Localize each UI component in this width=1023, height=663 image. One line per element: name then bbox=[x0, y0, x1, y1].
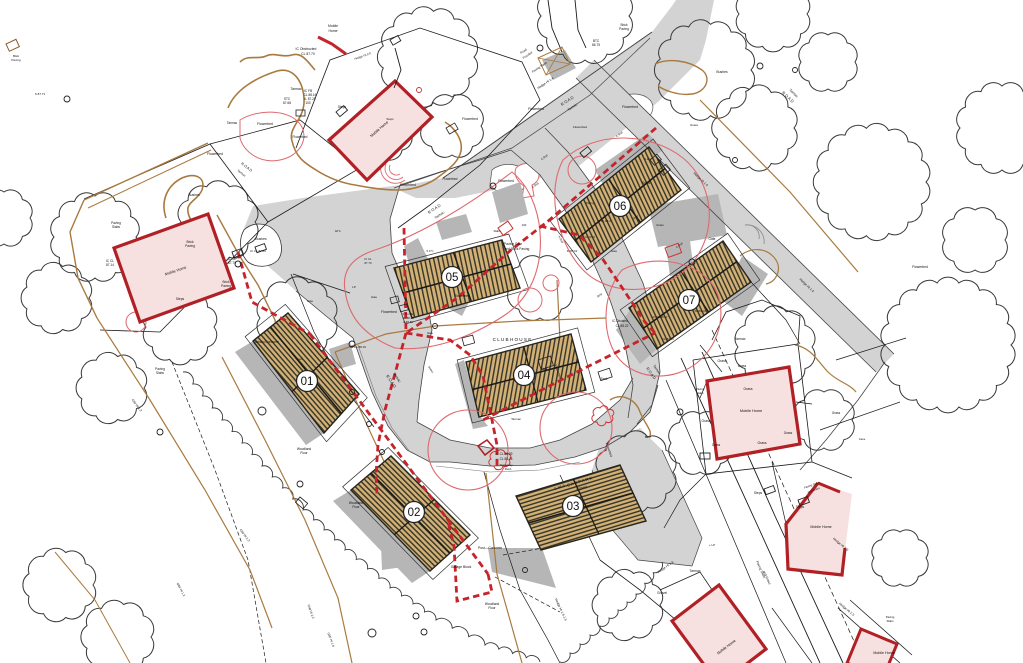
svg-text:Steps: Steps bbox=[176, 297, 185, 301]
svg-text:100: 100 bbox=[522, 223, 527, 227]
svg-text:IC Obstructed: IC Obstructed bbox=[296, 47, 317, 51]
svg-text:Gate: Gate bbox=[427, 331, 434, 335]
svg-text:Mobile Home: Mobile Home bbox=[810, 525, 831, 529]
svg-text:100: 100 bbox=[305, 101, 311, 105]
svg-text:Steps: Steps bbox=[796, 505, 805, 509]
svg-text:Tarmac: Tarmac bbox=[689, 569, 700, 573]
svg-text:Tarmac: Tarmac bbox=[290, 87, 301, 91]
svg-text:Post—Concrete: Post—Concrete bbox=[478, 546, 502, 550]
svg-text:Bushes: Bushes bbox=[188, 193, 200, 197]
svg-text:Flowerbed: Flowerbed bbox=[400, 183, 416, 187]
svg-text:Grass: Grass bbox=[656, 223, 664, 227]
svg-text:Mobile Home: Mobile Home bbox=[740, 409, 762, 413]
svg-text:Mobile: Mobile bbox=[328, 24, 338, 28]
svg-text:01: 01 bbox=[301, 376, 314, 388]
svg-text:Steps: Steps bbox=[338, 105, 347, 109]
svg-text:Bush: Bush bbox=[645, 435, 652, 439]
svg-text:CL 88.22: CL 88.22 bbox=[616, 324, 629, 328]
svg-text:Flowerbed: Flowerbed bbox=[462, 117, 478, 121]
svg-text:Kerb: Kerb bbox=[297, 357, 303, 361]
svg-text:Home: Home bbox=[328, 29, 337, 33]
svg-text:Paving: Paving bbox=[185, 244, 195, 248]
svg-text:Paving: Paving bbox=[586, 201, 595, 205]
svg-text:Steps: Steps bbox=[386, 117, 394, 121]
svg-text:Flowerbed: Flowerbed bbox=[293, 135, 308, 139]
svg-text:and Brick Paving: and Brick Paving bbox=[505, 247, 530, 251]
svg-text:S 87.71: S 87.71 bbox=[35, 92, 46, 96]
svg-text:06: 06 bbox=[614, 201, 627, 213]
svg-text:Slabs: Slabs bbox=[887, 619, 895, 623]
svg-text:5.0 ½: 5.0 ½ bbox=[427, 249, 435, 253]
svg-text:Flowerbed: Flowerbed bbox=[912, 265, 928, 269]
svg-text:Gate: Gate bbox=[371, 295, 378, 299]
svg-text:IC Disused: IC Disused bbox=[612, 319, 628, 323]
svg-text:Tarmac: Tarmac bbox=[734, 337, 745, 341]
svg-text:IC CL 88.13: IC CL 88.13 bbox=[653, 315, 668, 319]
svg-text:Flowerbed: Flowerbed bbox=[207, 152, 223, 156]
svg-text:Slabs: Slabs bbox=[112, 225, 120, 229]
svg-text:03: 03 bbox=[567, 501, 580, 513]
svg-text:IL 87.81: IL 87.81 bbox=[403, 320, 413, 324]
svg-text:Steps: Steps bbox=[754, 491, 763, 495]
svg-text:Grass: Grass bbox=[784, 431, 793, 435]
svg-text:Flowerbed: Flowerbed bbox=[498, 179, 514, 183]
svg-text:Grass: Grass bbox=[717, 359, 726, 363]
svg-text:Tarmac: Tarmac bbox=[511, 417, 521, 421]
svg-text:Slabs: Slabs bbox=[494, 229, 502, 233]
svg-text:Grass: Grass bbox=[701, 419, 710, 423]
svg-text:87.70: 87.70 bbox=[365, 261, 372, 265]
svg-text:Paving Gate: Paving Gate bbox=[504, 242, 522, 246]
svg-text:Slabs: Slabs bbox=[697, 391, 705, 395]
svg-text:Gate: Gate bbox=[307, 299, 314, 303]
svg-text:Tarmac/Concrete: Tarmac/Concrete bbox=[253, 340, 279, 344]
svg-text:07: 07 bbox=[683, 295, 696, 307]
svg-text:04: 04 bbox=[518, 370, 531, 382]
svg-text:CL 87.40: CL 87.40 bbox=[662, 337, 674, 341]
svg-text:Paving: Paving bbox=[221, 284, 231, 288]
svg-text:CL 87.70: CL 87.70 bbox=[301, 52, 315, 56]
svg-text:Flowerbed: Flowerbed bbox=[573, 125, 587, 129]
svg-text:Grass: Grass bbox=[738, 364, 747, 368]
svg-text:Flowerbed: Flowerbed bbox=[622, 105, 638, 109]
svg-text:Grass: Grass bbox=[690, 123, 699, 127]
svg-text:Floor: Floor bbox=[488, 606, 496, 610]
svg-text:Grass: Grass bbox=[757, 441, 766, 445]
svg-text:Rush: Rush bbox=[505, 467, 512, 471]
svg-text:Floor: Floor bbox=[352, 505, 360, 509]
svg-text:Flowerbed: Flowerbed bbox=[381, 310, 397, 314]
svg-text:87.68: 87.68 bbox=[283, 101, 291, 105]
svg-text:Flowerbed: Flowerbed bbox=[443, 177, 458, 181]
svg-text:Grass: Grass bbox=[712, 443, 721, 447]
svg-text:IC CL 87.84: IC CL 87.84 bbox=[250, 249, 266, 253]
svg-text:IC CL 88.29: IC CL 88.29 bbox=[496, 452, 513, 456]
svg-text:Flowerbed: Flowerbed bbox=[528, 107, 544, 111]
svg-text:C L U B H O U S E: C L U B H O U S E bbox=[493, 337, 532, 342]
svg-text:Gate: Gate bbox=[709, 237, 716, 241]
svg-text:Gravel: Gravel bbox=[657, 591, 667, 595]
svg-text:IC CL 88.4: IC CL 88.4 bbox=[597, 219, 611, 223]
svg-text:IC 87.62: IC 87.62 bbox=[567, 249, 578, 253]
svg-text:02: 02 bbox=[408, 507, 421, 519]
svg-text:86.75: 86.75 bbox=[592, 43, 600, 47]
svg-text:87.14: 87.14 bbox=[106, 263, 114, 267]
svg-text:Tarmac: Tarmac bbox=[227, 121, 238, 125]
svg-text:CL 87.9: CL 87.9 bbox=[585, 235, 595, 239]
svg-text:LP: LP bbox=[352, 285, 356, 289]
svg-text:Flowerbed: Flowerbed bbox=[454, 294, 470, 298]
svg-text:Paving: Paving bbox=[619, 27, 629, 31]
svg-text:05: 05 bbox=[446, 272, 459, 284]
svg-text:Gate: Gate bbox=[611, 249, 618, 253]
svg-text:CL 88.28: CL 88.28 bbox=[500, 457, 513, 461]
svg-text:ETC: ETC bbox=[335, 229, 341, 233]
svg-text:Grass: Grass bbox=[832, 411, 841, 415]
svg-text:Floor: Floor bbox=[300, 451, 308, 455]
svg-text:SL 86.13: SL 86.13 bbox=[694, 309, 706, 313]
svg-text:Grass: Grass bbox=[743, 387, 752, 391]
svg-text:Grass: Grass bbox=[642, 181, 651, 185]
svg-text:Bushes: Bushes bbox=[255, 237, 267, 241]
svg-text:+ LP: + LP bbox=[709, 543, 715, 547]
svg-text:Bushes: Bushes bbox=[716, 70, 728, 74]
svg-text:Mobile Home: Mobile Home bbox=[873, 651, 894, 655]
svg-text:Garage Block: Garage Block bbox=[451, 565, 472, 569]
svg-text:Shadoway: Shadoway bbox=[499, 463, 513, 467]
svg-text:Cave: Cave bbox=[859, 437, 866, 441]
svg-text:Slabs: Slabs bbox=[156, 371, 164, 375]
svg-text:Paving: Paving bbox=[11, 58, 21, 62]
svg-text:Flowerbed: Flowerbed bbox=[257, 122, 273, 126]
